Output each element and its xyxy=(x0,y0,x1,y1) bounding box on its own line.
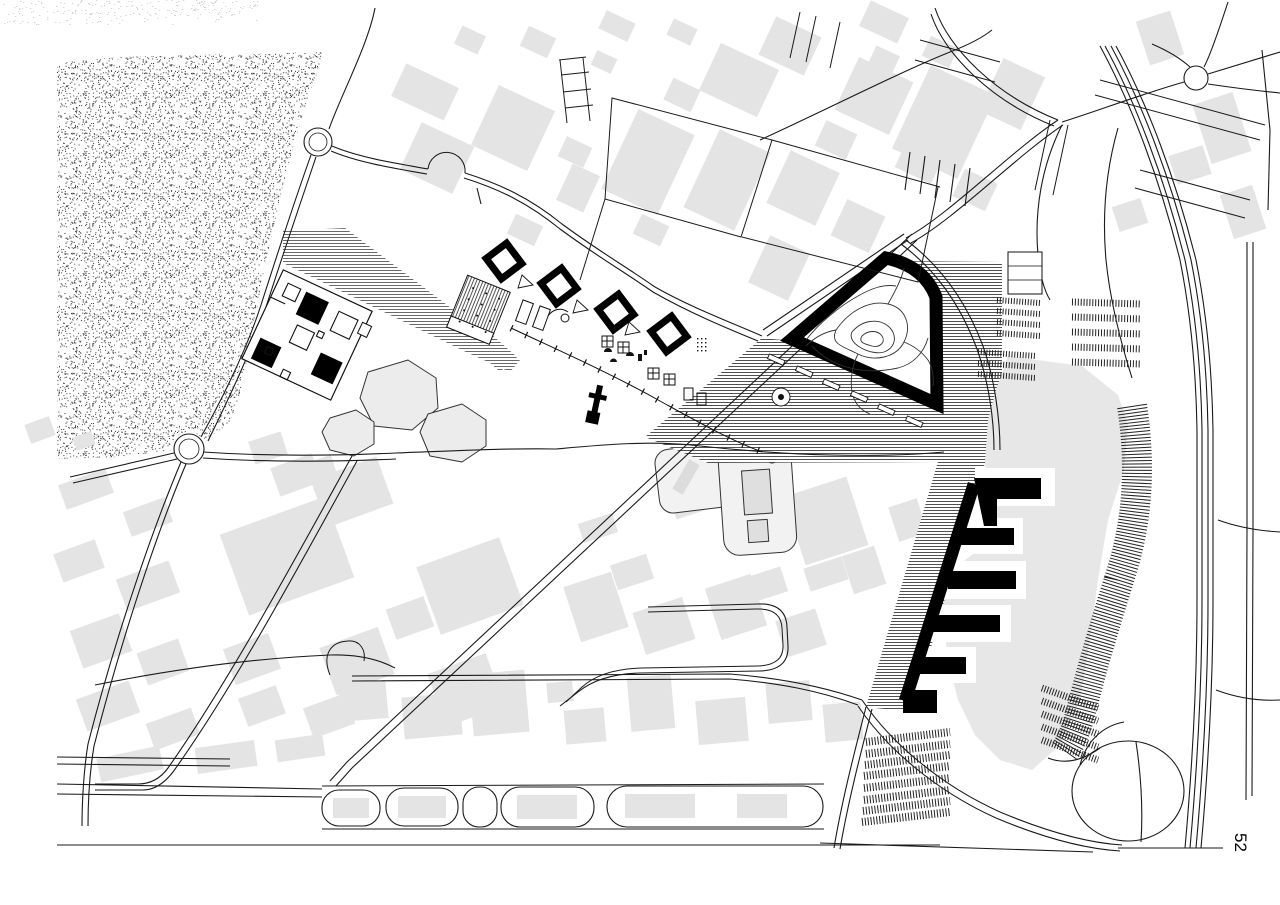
svg-text:52: 52 xyxy=(1231,833,1250,852)
